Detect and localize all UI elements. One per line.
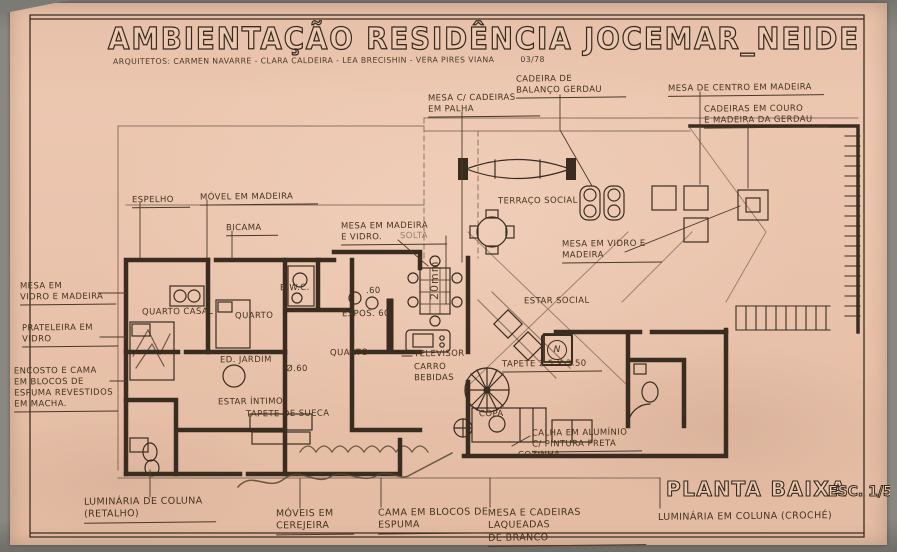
label-dim-60: .60: [366, 286, 392, 297]
terrace-posts: [458, 158, 576, 180]
drawing-date: 03/78: [520, 55, 545, 64]
scanned-drawing: { "colors":{"paper":"#e8c1aa","ink":"#3a…: [0, 0, 897, 552]
wardrobe: [170, 286, 204, 306]
label-bicama: BICAMA: [226, 223, 278, 237]
round-table-60: [223, 365, 245, 387]
label-movel-madeira: MÓVEL EM MADEIRA: [200, 191, 318, 205]
label-copa: COPA: [479, 409, 519, 420]
construction-lines: [118, 118, 858, 478]
label-televisor: TELEVISOR: [414, 349, 474, 361]
label-prateleira: PRATELEIRA EM VIDRO: [22, 322, 118, 347]
label-dim-20mm: 20mm: [428, 261, 442, 300]
round-table-chairs: [470, 210, 514, 254]
stairs-right: [736, 136, 860, 330]
label-terraco-social: TERRAÇO SOCIAL: [498, 196, 590, 208]
plan-scale: ESC. 1/50: [828, 484, 890, 500]
label-diametro-60: Ø.60: [286, 364, 316, 375]
deck-plants: [300, 446, 428, 452]
label-mesa-vidro-left: MESA EM VIDRO E MADEIRA: [20, 280, 116, 305]
plan-title-block: PLANTA BAIXA ESC. 1/50: [662, 474, 890, 504]
signature-scribble: [238, 453, 452, 487]
label-luminaria-retalho: LUMINÁRIA DE COLUNA (RETALHO): [84, 495, 216, 523]
label-estar-social: ESTAR SOCIAL: [524, 296, 604, 308]
bath-left-fixtures: [130, 438, 159, 476]
label-encosto-cama: ENCOSTO E CAMA EM BLOCOS DE ESPUMA REVES…: [14, 365, 118, 412]
label-estar-intimo: ESTAR ÍNTIMO: [218, 397, 298, 409]
spiral-staircase: [465, 368, 509, 412]
label-mesa-centro: MESA DE CENTRO EM MADEIRA: [668, 82, 824, 97]
planter: [466, 160, 570, 179]
copa-table: [454, 419, 472, 437]
label-cama-espuma: CAMA EM BLOCOS DE ESPUMA: [378, 506, 490, 534]
label-cadeiras-couro: CADEIRAS EM COURO E MADEIRA DA GERDAU: [704, 103, 830, 128]
label-cozinha: COZINHA: [518, 450, 574, 462]
label-quarto-1: QUARTO: [235, 311, 283, 323]
label-solta: SOLTA: [400, 231, 440, 242]
label-quarto-2: QUARTO: [330, 348, 378, 360]
plan-title: PLANTA BAIXA: [666, 477, 847, 501]
label-carro-bebidas: CARRO BEBIDAS: [414, 362, 470, 385]
label-tapete-sueca: TAPETE DE SUECA: [246, 409, 338, 421]
label-luminaria-croche: LUMINÁRIA EM COLUNA (CROCHÉ): [658, 510, 838, 524]
north-letter: N: [547, 340, 567, 360]
label-moveis-cerejeira: MÓVEIS EM CEREJEIRA: [276, 508, 354, 536]
label-mesa-vidro-right: MESA EM VIDRO E MADEIRA: [562, 238, 662, 263]
label-quarto-casal: QUARTO CASAL: [142, 307, 228, 319]
label-mesa-laqueada: MESA E CADEIRAS LAQUEADAS DE BRANCO: [488, 506, 646, 547]
north-symbol: N: [541, 334, 573, 366]
label-espelho: ESPELHO: [132, 195, 190, 209]
label-cadeira-balanco: CADEIRA DE BALANÇO GERDAU: [516, 73, 626, 98]
leader-lines: [98, 92, 748, 508]
page-title: AMBIENTAÇÃO RESIDÊNCIA JOCEMAR_NEIDE: [108, 20, 860, 57]
label-ed-jardim: ED. JARDIM: [220, 355, 280, 367]
side-tables: [652, 186, 768, 242]
label-calha-aluminio: CALHA EM ALUMÍNIO C/ PINTURA PRETA: [532, 427, 642, 452]
label-bwc: B.W.C.: [280, 283, 316, 294]
bathroom-right: [628, 364, 658, 426]
label-espos-60: ESPOS. 60: [342, 309, 398, 321]
